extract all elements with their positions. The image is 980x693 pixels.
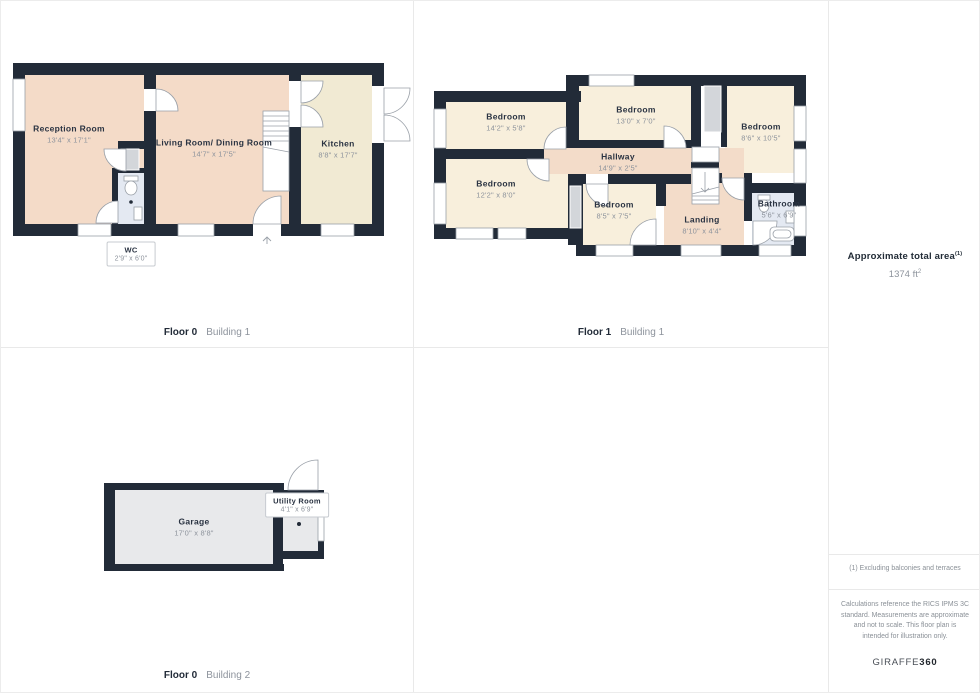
- floor-plan-floor0-building1: [1, 1, 414, 348]
- floor-plan-floor1-building1: [414, 1, 828, 348]
- sink: [134, 207, 142, 220]
- floor-plan-floor0-building2: [1, 348, 414, 693]
- floor-plan-sheet: Reception Room 13'4" x 17'1" Living Room…: [0, 0, 980, 693]
- staircase: [263, 111, 289, 191]
- toilet-cistern: [758, 195, 770, 200]
- utility-marker-dot: [297, 522, 301, 526]
- total-area-block: Approximate total area(1) 1374 ft2: [829, 251, 980, 280]
- room-fills: [25, 75, 372, 224]
- chimney-block: [704, 86, 721, 132]
- floor-label-floor0-building1: Floor 0Building 1: [164, 327, 250, 338]
- toilet-bowl: [125, 181, 137, 195]
- wc-marker-dot: [129, 200, 133, 204]
- panel-floor0-building1: Reception Room 13'4" x 17'1" Living Room…: [1, 1, 414, 348]
- disclaimer-text: Calculations reference the RICS IPMS 3C …: [829, 589, 980, 643]
- total-area-title: Approximate total area(1): [829, 251, 980, 262]
- giraffe360-logo: GIRAFFE360: [829, 657, 980, 668]
- toilet-cistern: [124, 176, 138, 181]
- room-garage-area: [115, 490, 273, 564]
- cupboard-block: [570, 186, 581, 228]
- panel-floor1-building1: Bedroom 14'2" x 5'8" Bedroom 13'0" x 7'0…: [414, 1, 828, 348]
- room-fills: [446, 86, 794, 245]
- stairwell: [692, 147, 719, 204]
- area-footnote: (1) Excluding balconies and terraces: [829, 554, 980, 572]
- label-utility-room: Utility Room 4'1" x 6'9": [265, 493, 329, 518]
- total-area-value: 1374 ft2: [829, 269, 980, 280]
- floor-label-floor0-building2: Floor 0Building 2: [164, 670, 250, 681]
- utility-window: [318, 516, 324, 541]
- label-wc: WC 2'9" x 6'0": [107, 242, 156, 267]
- toilet-bowl: [759, 200, 769, 212]
- utility-door-arc: [288, 460, 318, 490]
- floor-label-floor1-building1: Floor 1Building 1: [578, 327, 664, 338]
- panel-floor0-building2: Garage 17'0" x 8'8" Utility Room 4'1" x …: [1, 348, 414, 693]
- entrance-arrow-icon: [263, 237, 271, 244]
- footnote-marker: (1): [955, 251, 962, 257]
- bathtub: [770, 227, 794, 241]
- room-hallway-area: [544, 148, 664, 174]
- sidebar: Approximate total area(1) 1374 ft2 (1) E…: [828, 1, 980, 693]
- sink: [786, 211, 794, 223]
- panel-empty: [414, 348, 828, 693]
